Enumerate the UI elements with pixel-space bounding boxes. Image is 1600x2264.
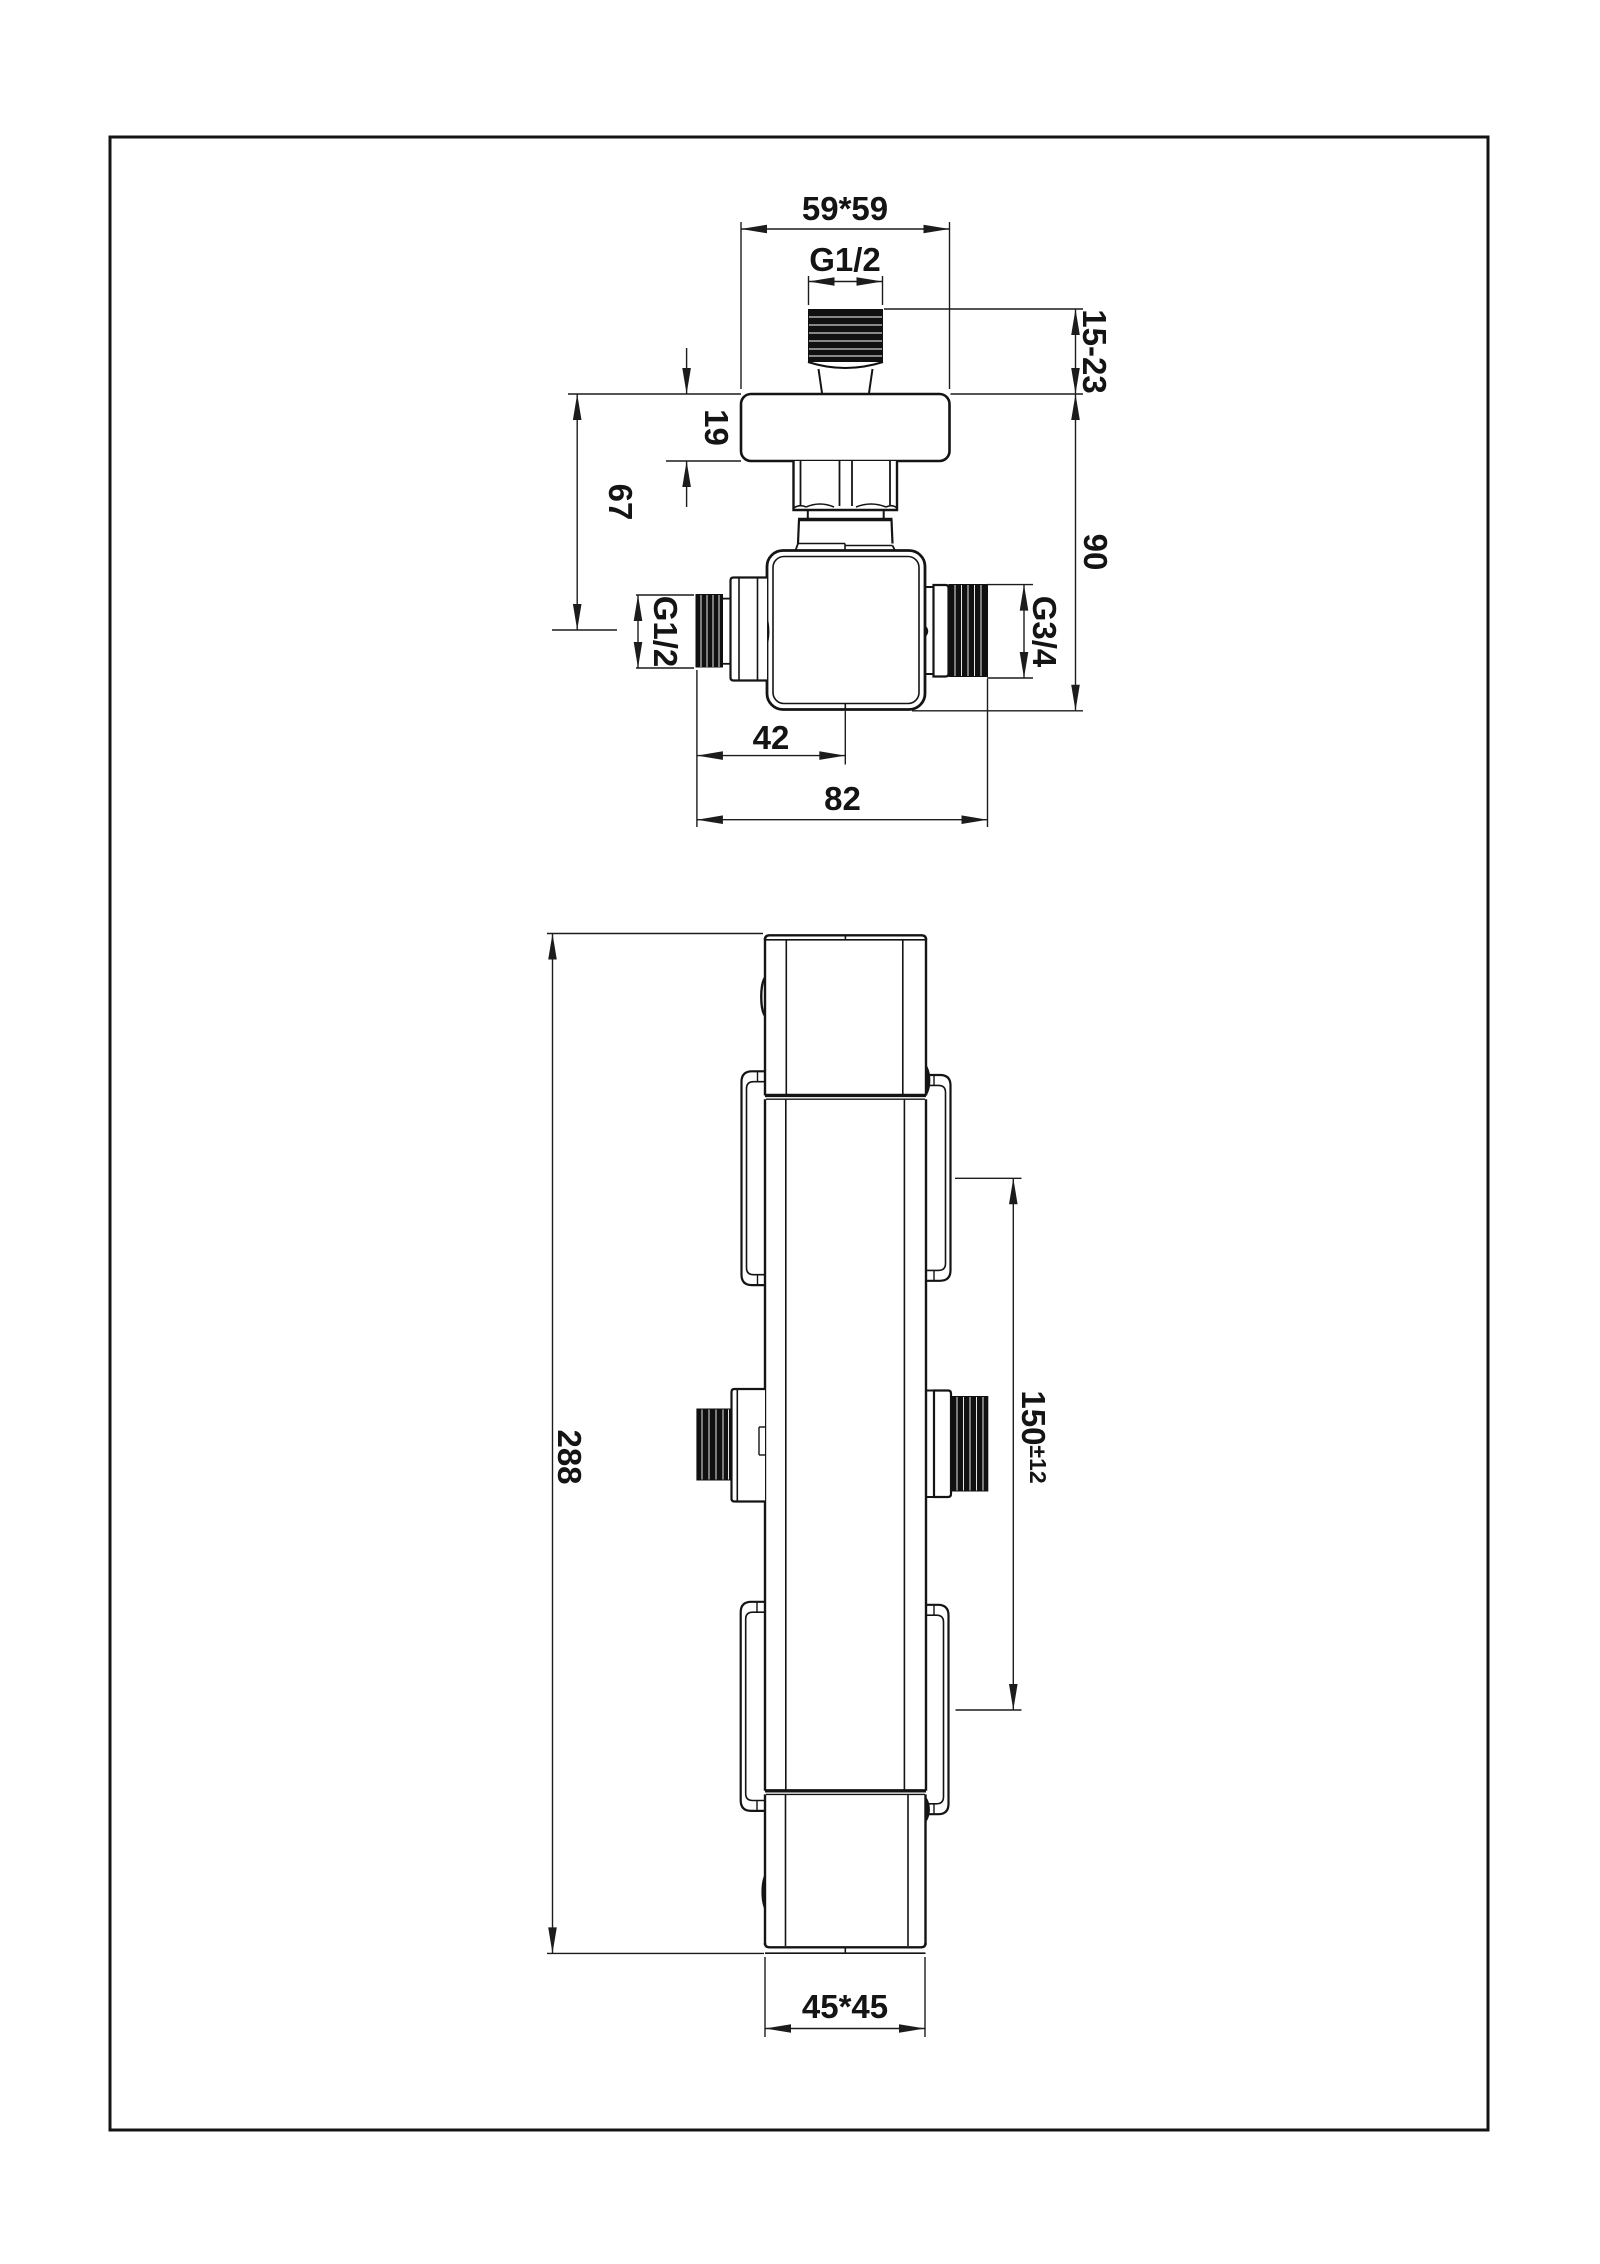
svg-text:288: 288 <box>551 1429 588 1484</box>
svg-text:59*59: 59*59 <box>802 190 888 227</box>
svg-text:G1/2: G1/2 <box>809 241 881 278</box>
svg-text:42: 42 <box>753 719 790 756</box>
svg-text:19: 19 <box>698 409 735 446</box>
svg-text:150±12: 150±12 <box>1015 1390 1052 1483</box>
svg-text:90: 90 <box>1077 534 1114 571</box>
svg-text:G3/4: G3/4 <box>1026 596 1063 668</box>
svg-text:67: 67 <box>602 484 639 521</box>
svg-text:82: 82 <box>824 780 861 817</box>
svg-text:G1/2: G1/2 <box>647 596 684 668</box>
svg-text:15-23: 15-23 <box>1076 309 1113 393</box>
svg-text:45*45: 45*45 <box>802 1988 888 2025</box>
